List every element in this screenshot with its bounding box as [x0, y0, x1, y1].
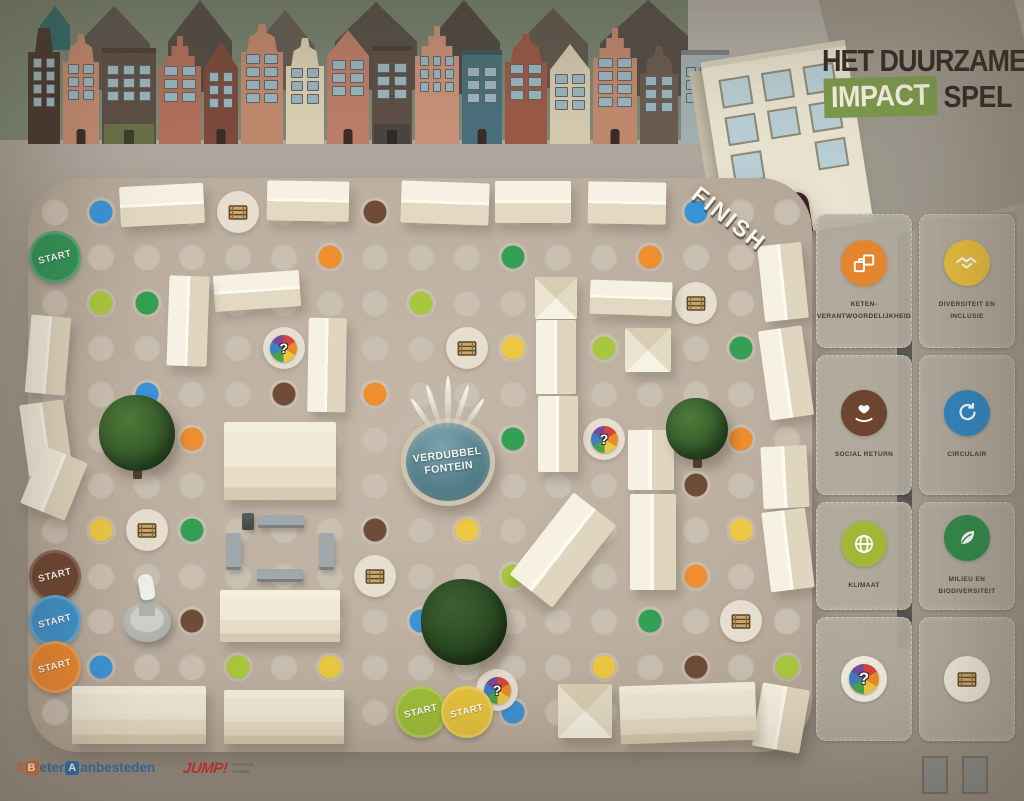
board-space-green[interactable]	[730, 337, 753, 360]
category-card-label: MILIEU ENBIODIVERSITEIT	[938, 574, 995, 597]
start-label: START	[37, 248, 73, 267]
fountain-label: VERDUBBELFONTEIN	[396, 413, 500, 512]
board-space-yellow[interactable]	[89, 519, 112, 542]
market-stall	[761, 508, 814, 593]
board-space[interactable]	[133, 335, 160, 362]
board-space[interactable]	[270, 653, 297, 680]
board-space[interactable]	[682, 244, 709, 271]
board-space[interactable]	[545, 653, 572, 680]
board-space-lime[interactable]	[410, 291, 433, 314]
beter-logo-segment: #	[16, 760, 24, 775]
start-space-yellow[interactable]: START	[441, 686, 493, 738]
chance-wheel-icon: ?	[849, 664, 879, 694]
jump-sub-line2: GAMES	[231, 769, 249, 774]
chance-wheel-icon: ?	[841, 656, 887, 702]
crate-icon	[362, 563, 388, 589]
board-space-lime[interactable]	[89, 291, 112, 314]
board-space-brown[interactable]	[684, 473, 707, 496]
tree	[99, 395, 175, 471]
chance-wheel-icon: ?	[270, 335, 297, 362]
board-space-orange[interactable]	[638, 246, 661, 269]
bench	[258, 515, 304, 528]
board-space[interactable]	[408, 653, 435, 680]
board-space-blue[interactable]	[89, 201, 112, 224]
board-space[interactable]	[499, 380, 526, 407]
board-space[interactable]	[545, 244, 572, 271]
board-space-brown[interactable]	[364, 519, 387, 542]
board-space[interactable]	[42, 517, 69, 544]
board-space[interactable]	[362, 653, 389, 680]
start-space-blue[interactable]: START	[29, 595, 81, 647]
board-space-green[interactable]	[181, 519, 204, 542]
question-mark: ?	[493, 682, 502, 698]
crate-space[interactable]	[126, 509, 168, 551]
crate-icon	[225, 199, 251, 225]
market-stall	[538, 396, 578, 472]
board-space[interactable]	[179, 380, 206, 407]
board-space-yellow[interactable]	[593, 655, 616, 678]
start-space-green[interactable]: START	[29, 231, 81, 283]
market-stall	[400, 180, 489, 225]
board-space[interactable]	[545, 608, 572, 635]
board-space[interactable]	[728, 562, 755, 589]
question-mark: ?	[279, 340, 288, 356]
board-space[interactable]	[408, 244, 435, 271]
board-space-lime[interactable]	[776, 655, 799, 678]
jump-logo-subtext: SERIOUS GAMES	[231, 762, 253, 775]
beter-logo-segment: eter	[40, 760, 65, 775]
board-space[interactable]	[453, 244, 480, 271]
board-space-brown[interactable]	[181, 610, 204, 633]
footer-logos: #BeterAanbesteden JUMP! SERIOUS GAMES	[16, 760, 254, 777]
market-stall	[224, 690, 344, 744]
market-stall	[758, 325, 814, 420]
board-space[interactable]	[87, 471, 114, 498]
market-stall	[224, 422, 336, 500]
board-space-green[interactable]	[501, 428, 524, 451]
market-stall	[588, 181, 667, 224]
board-space[interactable]	[316, 289, 343, 316]
category-card-supply-chain[interactable]: KETEN-VERANTWOORDELIJKHEID	[816, 214, 912, 348]
market-stall	[535, 277, 577, 319]
question-mark: ?	[859, 669, 869, 689]
board-space-brown[interactable]	[272, 382, 295, 405]
board-space[interactable]	[408, 335, 435, 362]
bench	[257, 569, 303, 582]
board-space[interactable]	[499, 289, 526, 316]
game-title: HET DUURZAME IMPACT SPEL	[822, 44, 1012, 115]
chance-wheel-icon: ?	[591, 426, 618, 453]
board-space[interactable]	[728, 653, 755, 680]
board-space-yellow[interactable]	[455, 519, 478, 542]
start-label: START	[37, 657, 73, 676]
market-stall	[213, 270, 301, 312]
market-stall	[619, 682, 757, 745]
bench	[319, 533, 334, 570]
category-card-giving-hands[interactable]: SOCIAL RETURN	[816, 355, 912, 495]
market-stall	[752, 682, 810, 753]
market-stall	[536, 320, 576, 394]
category-card-label: KETEN-VERANTWOORDELIJKHEID	[817, 299, 911, 322]
start-space-lime[interactable]: START	[395, 686, 447, 738]
board-space[interactable]	[591, 380, 618, 407]
board-space[interactable]	[362, 471, 389, 498]
giving-hands-icon	[841, 390, 887, 436]
market-stall	[630, 494, 676, 590]
title-line1: HET DUURZAME	[822, 44, 1012, 79]
beter-aanbesteden-logo: #BeterAanbesteden	[16, 760, 155, 775]
board-space-yellow[interactable]	[318, 655, 341, 678]
board-space[interactable]	[87, 244, 114, 271]
board-space-green[interactable]	[135, 291, 158, 314]
board-space[interactable]	[179, 562, 206, 589]
category-card-label: SOCIAL RETURN	[835, 449, 894, 461]
board-space-orange[interactable]	[181, 428, 204, 451]
chance-wheel-space[interactable]: ?	[583, 418, 625, 460]
board-space[interactable]	[42, 289, 69, 316]
bench	[226, 533, 241, 570]
crate-space[interactable]	[217, 191, 259, 233]
crate-space[interactable]	[446, 327, 488, 369]
market-stall	[220, 590, 340, 642]
board-space[interactable]	[362, 289, 389, 316]
board-space-green[interactable]	[501, 246, 524, 269]
board-space[interactable]	[87, 562, 114, 589]
chance-wheel-space[interactable]: ?	[263, 327, 305, 369]
crate-icon	[134, 517, 160, 543]
category-card-label: CIRCULAIR	[947, 449, 986, 461]
statue	[117, 576, 177, 646]
board-space[interactable]	[270, 244, 297, 271]
market-stall	[25, 314, 72, 395]
crate-icon	[944, 656, 990, 702]
board-space-lime[interactable]	[227, 655, 250, 678]
board-space[interactable]	[453, 289, 480, 316]
board-space[interactable]	[774, 199, 801, 226]
supply-chain-icon	[841, 240, 887, 286]
jump-logo: JUMP! SERIOUS GAMES	[183, 760, 254, 777]
market-stall	[119, 183, 205, 227]
board-space[interactable]	[408, 562, 435, 589]
circular-arrows-icon	[944, 390, 990, 436]
market-stall	[589, 280, 672, 317]
category-card-circular-arrows[interactable]: CIRCULAIR	[919, 355, 1015, 495]
crate-icon	[683, 290, 709, 316]
board-space[interactable]	[362, 698, 389, 725]
tree	[666, 398, 728, 460]
double-fountain-space[interactable]: VERDUBBELFONTEIN	[401, 418, 495, 506]
board-space-blue[interactable]	[89, 655, 112, 678]
board-space[interactable]	[591, 608, 618, 635]
market-stall	[72, 686, 206, 744]
board-space[interactable]	[42, 698, 69, 725]
board-space-brown[interactable]	[684, 655, 707, 678]
board-space-lime[interactable]	[593, 337, 616, 360]
category-card-globe[interactable]: KLIMAAT	[816, 502, 912, 610]
board-space[interactable]	[133, 653, 160, 680]
board-space[interactable]	[591, 471, 618, 498]
board-space-orange[interactable]	[364, 382, 387, 405]
category-card-handshake[interactable]: DIVERSITEIT ENINCLUSIE	[919, 214, 1015, 348]
board-space[interactable]	[591, 562, 618, 589]
category-card-chance-wheel[interactable]: ?	[816, 617, 912, 741]
board-space-yellow[interactable]	[730, 519, 753, 542]
crate-space[interactable]	[354, 555, 396, 597]
board-space[interactable]	[636, 380, 663, 407]
jump-logo-text: JUMP!	[182, 760, 228, 777]
beter-logo-segment: anbesteden	[80, 760, 155, 775]
board-space[interactable]	[636, 653, 663, 680]
market-stall	[307, 318, 347, 413]
jump-sub-line1: SERIOUS	[231, 762, 253, 767]
board-space[interactable]	[774, 608, 801, 635]
board-space[interactable]	[682, 608, 709, 635]
board-space[interactable]	[499, 471, 526, 498]
board-space[interactable]	[179, 244, 206, 271]
start-label: START	[449, 702, 485, 721]
title-spel: SPEL	[943, 80, 1012, 115]
market-stall	[267, 180, 350, 221]
board-space[interactable]	[362, 608, 389, 635]
statue-figure	[137, 573, 156, 601]
board-space[interactable]	[225, 380, 252, 407]
board-space[interactable]	[728, 471, 755, 498]
start-space-orange[interactable]: START	[29, 641, 81, 693]
board-space[interactable]	[179, 471, 206, 498]
market-stall	[625, 328, 671, 372]
board-space[interactable]	[499, 517, 526, 544]
beter-logo-segment: A	[65, 761, 79, 775]
board-space[interactable]	[362, 335, 389, 362]
market-stall	[760, 445, 809, 509]
market-stall	[495, 181, 571, 223]
beter-logo-segment: B	[25, 761, 39, 775]
board-space-green[interactable]	[638, 610, 661, 633]
start-label: START	[403, 702, 439, 721]
market-stall	[166, 275, 209, 366]
board-space[interactable]	[42, 199, 69, 226]
crate-icon	[728, 608, 754, 634]
category-card-label: DIVERSITEIT ENINCLUSIE	[939, 299, 996, 322]
question-mark: ?	[600, 431, 609, 447]
board-space[interactable]	[545, 471, 572, 498]
board-space[interactable]	[682, 517, 709, 544]
category-card-crate[interactable]	[919, 617, 1015, 741]
board-space[interactable]	[225, 335, 252, 362]
crate-icon	[454, 335, 480, 361]
board-space[interactable]	[408, 517, 435, 544]
board-space[interactable]	[362, 426, 389, 453]
board-space[interactable]	[728, 380, 755, 407]
market-stall	[558, 684, 612, 738]
board-space[interactable]	[682, 335, 709, 362]
board-space-brown[interactable]	[364, 201, 387, 224]
board-space[interactable]	[87, 335, 114, 362]
start-label: START	[37, 566, 73, 585]
board-space[interactable]	[87, 608, 114, 635]
board-space[interactable]	[225, 244, 252, 271]
board-space[interactable]	[133, 244, 160, 271]
trash-bin	[242, 513, 254, 530]
board-game-image: HET DUURZAME IMPACT SPEL VERDUBBELFONTEI…	[0, 0, 1024, 801]
board-space[interactable]	[179, 653, 206, 680]
category-card-label: KLIMAAT	[848, 580, 880, 592]
title-impact-highlight: IMPACT	[823, 76, 936, 119]
board-space[interactable]	[362, 244, 389, 271]
board-space-yellow[interactable]	[501, 337, 524, 360]
crate-space[interactable]	[675, 282, 717, 324]
board-space-orange[interactable]	[730, 428, 753, 451]
start-label: START	[37, 612, 73, 631]
start-space-brown[interactable]: START	[29, 550, 81, 602]
tree	[421, 579, 507, 665]
leaf-icon	[944, 515, 990, 561]
category-card-leaf[interactable]: MILIEU ENBIODIVERSITEIT	[919, 502, 1015, 610]
board-space-orange[interactable]	[684, 564, 707, 587]
board-space[interactable]	[591, 244, 618, 271]
crate-space[interactable]	[720, 600, 762, 642]
category-cards-panel: KETEN-VERANTWOORDELIJKHEIDDIVERSITEIT EN…	[816, 214, 1015, 741]
board-space[interactable]	[728, 289, 755, 316]
board-space-orange[interactable]	[318, 246, 341, 269]
market-stall	[510, 492, 617, 607]
globe-icon	[841, 521, 887, 567]
handshake-icon	[944, 240, 990, 286]
